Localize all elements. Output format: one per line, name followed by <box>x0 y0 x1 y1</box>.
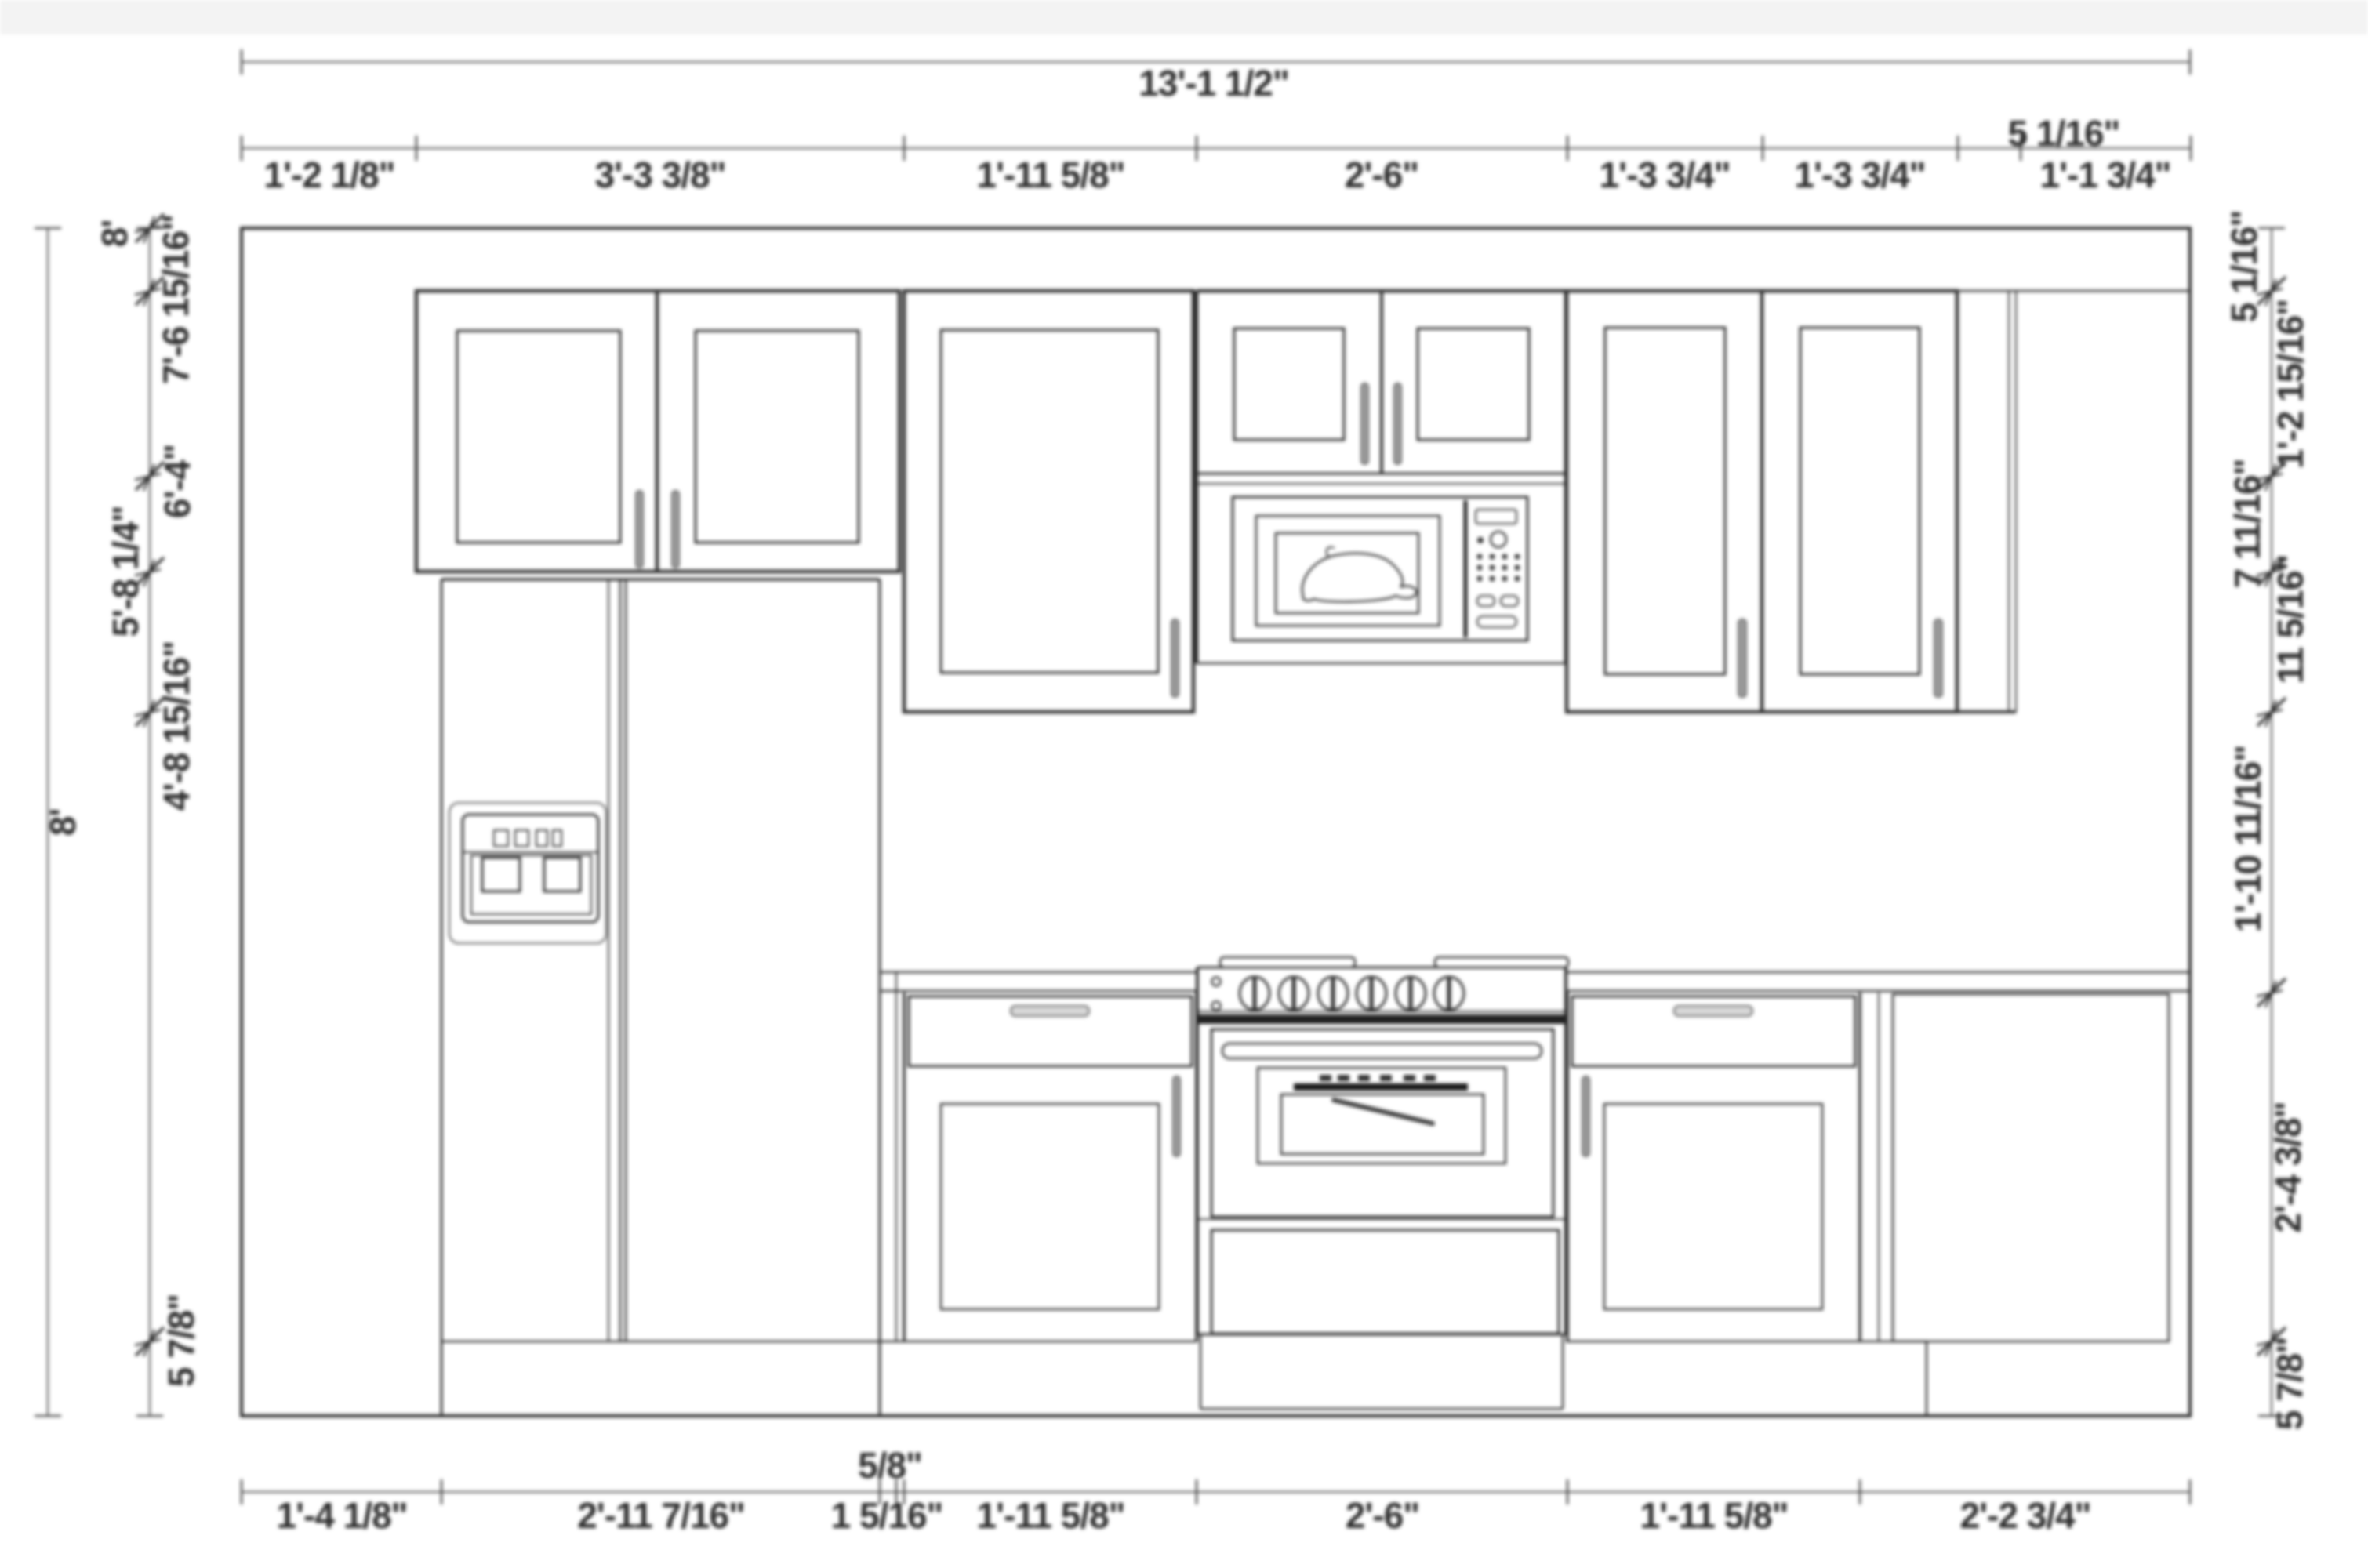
svg-text:2'-4 3/8": 2'-4 3/8" <box>2268 1102 2308 1233</box>
svg-text:1'-1 3/4": 1'-1 3/4" <box>2040 154 2171 195</box>
svg-text:5 7/8": 5 7/8" <box>161 1294 202 1387</box>
svg-text:11 5/16": 11 5/16" <box>2270 555 2311 684</box>
svg-text:2'-2 3/4": 2'-2 3/4" <box>1960 1495 2091 1536</box>
svg-text:1'-11 5/8": 1'-11 5/8" <box>976 1495 1124 1536</box>
svg-text:2'-11 7/16": 2'-11 7/16" <box>577 1495 745 1536</box>
svg-text:7 11/16": 7 11/16" <box>2227 459 2268 589</box>
svg-text:5'-8 1/4": 5'-8 1/4" <box>105 506 146 637</box>
svg-text:1'-4 1/8": 1'-4 1/8" <box>277 1495 408 1536</box>
svg-text:1'-10 11/16": 1'-10 11/16" <box>2228 746 2268 932</box>
svg-text:8': 8' <box>94 220 135 248</box>
svg-text:6'-4": 6'-4" <box>157 445 198 518</box>
svg-text:5/8": 5/8" <box>858 1445 922 1486</box>
svg-text:2'-6": 2'-6" <box>1345 154 1418 195</box>
svg-text:7'-6 15/16": 7'-6 15/16" <box>155 215 196 384</box>
svg-text:1'-3 3/4": 1'-3 3/4" <box>1795 154 1926 195</box>
svg-text:5 7/8": 5 7/8" <box>2269 1338 2310 1430</box>
svg-text:1'-2 15/16": 1'-2 15/16" <box>2270 299 2311 469</box>
svg-text:2'-6": 2'-6" <box>1346 1495 1419 1536</box>
svg-text:3'-3 3/8": 3'-3 3/8" <box>595 154 726 195</box>
svg-text:1'-2 1/8": 1'-2 1/8" <box>264 154 395 195</box>
svg-text:1'-11 5/8": 1'-11 5/8" <box>976 154 1124 195</box>
svg-text:8': 8' <box>42 809 83 837</box>
svg-text:1 5/16": 1 5/16" <box>831 1495 943 1536</box>
svg-text:13'-1 1/2": 13'-1 1/2" <box>1139 63 1289 103</box>
svg-text:1'-3 3/4": 1'-3 3/4" <box>1600 154 1731 195</box>
svg-text:4'-8 15/16": 4'-8 15/16" <box>156 641 197 811</box>
svg-text:5 1/16": 5 1/16" <box>2224 211 2264 323</box>
svg-text:5 1/16": 5 1/16" <box>2008 113 2120 154</box>
svg-text:1'-11 5/8": 1'-11 5/8" <box>1640 1495 1788 1536</box>
